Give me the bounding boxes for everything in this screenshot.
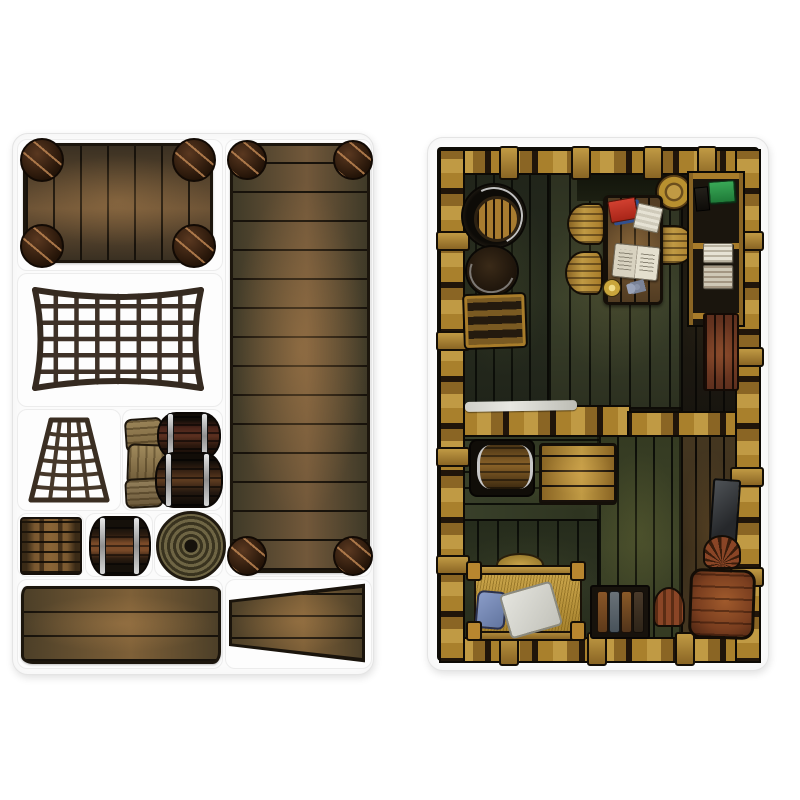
frame-tie <box>675 632 695 666</box>
bed-post <box>466 621 482 641</box>
candle-plate <box>603 279 621 297</box>
raft-corner-barrel <box>20 138 64 182</box>
piece-long-raft <box>230 143 370 573</box>
lantern <box>694 186 710 211</box>
frame-tie <box>499 146 519 180</box>
cargo-net-grid <box>38 293 198 386</box>
bed-post <box>570 621 586 641</box>
bottle-shelf <box>590 585 650 639</box>
bottle-crate <box>464 294 526 348</box>
red-table <box>688 568 756 640</box>
barrel-hoop <box>204 454 209 506</box>
piece-cargo-net <box>25 278 211 400</box>
frame-left <box>439 149 465 663</box>
paper-stack <box>703 265 733 289</box>
bed-post <box>466 561 482 581</box>
piece-small-raft <box>23 143 213 263</box>
chart-lines <box>617 249 633 270</box>
rack-barrel <box>477 445 533 489</box>
raft-corner-barrel <box>227 536 267 576</box>
barrel-hoop <box>100 518 105 574</box>
piece-barrel <box>89 516 151 576</box>
bed <box>470 565 582 637</box>
right-sheet <box>427 137 769 671</box>
cabin-map-tile <box>437 147 759 661</box>
left-sheet <box>12 133 374 675</box>
chart-lines <box>639 252 655 271</box>
paper-stack <box>703 243 733 263</box>
green-book <box>708 180 735 204</box>
raft-corner-barrel <box>333 140 373 180</box>
bottle <box>621 591 632 633</box>
open-barrel <box>463 185 525 247</box>
frame-tie <box>436 231 470 251</box>
bed-post <box>570 561 586 581</box>
small-red-chair <box>653 587 685 627</box>
rigging-grid <box>34 420 103 500</box>
bottle <box>633 591 644 633</box>
wall-cloth <box>465 400 577 412</box>
frame-tie <box>436 555 470 575</box>
barrel-rack <box>471 441 533 495</box>
product-photo <box>0 0 800 800</box>
piece-rope-coil <box>156 511 226 581</box>
red-cabinet <box>703 313 739 391</box>
frame-tie <box>571 146 591 180</box>
piece-sacks-and-barrels <box>125 412 219 507</box>
bottle <box>609 591 620 633</box>
piece-rigging-net <box>27 414 111 506</box>
chair <box>565 251 603 295</box>
piece-crate <box>20 517 82 575</box>
chair <box>567 203 605 245</box>
spindle-chair <box>703 535 741 569</box>
open-chart <box>611 243 660 282</box>
bottle <box>597 591 608 633</box>
raft-corner-barrel <box>20 224 64 268</box>
stacked-barrel <box>155 452 223 508</box>
raft-corner-barrel <box>333 536 373 576</box>
raft-corner-barrel <box>172 138 216 182</box>
raft-corner-barrel <box>172 224 216 268</box>
piece-gangplank <box>21 586 221 664</box>
closed-barrel <box>467 247 517 295</box>
raft-corner-barrel <box>227 140 267 180</box>
storage-chest <box>539 443 617 505</box>
frame-tie <box>436 447 470 467</box>
cross-beam <box>627 411 743 437</box>
barrel-hoop <box>134 518 139 574</box>
frame-tie <box>643 146 663 180</box>
open-barrel-planks <box>474 196 520 242</box>
barrel-hoop <box>166 454 171 506</box>
